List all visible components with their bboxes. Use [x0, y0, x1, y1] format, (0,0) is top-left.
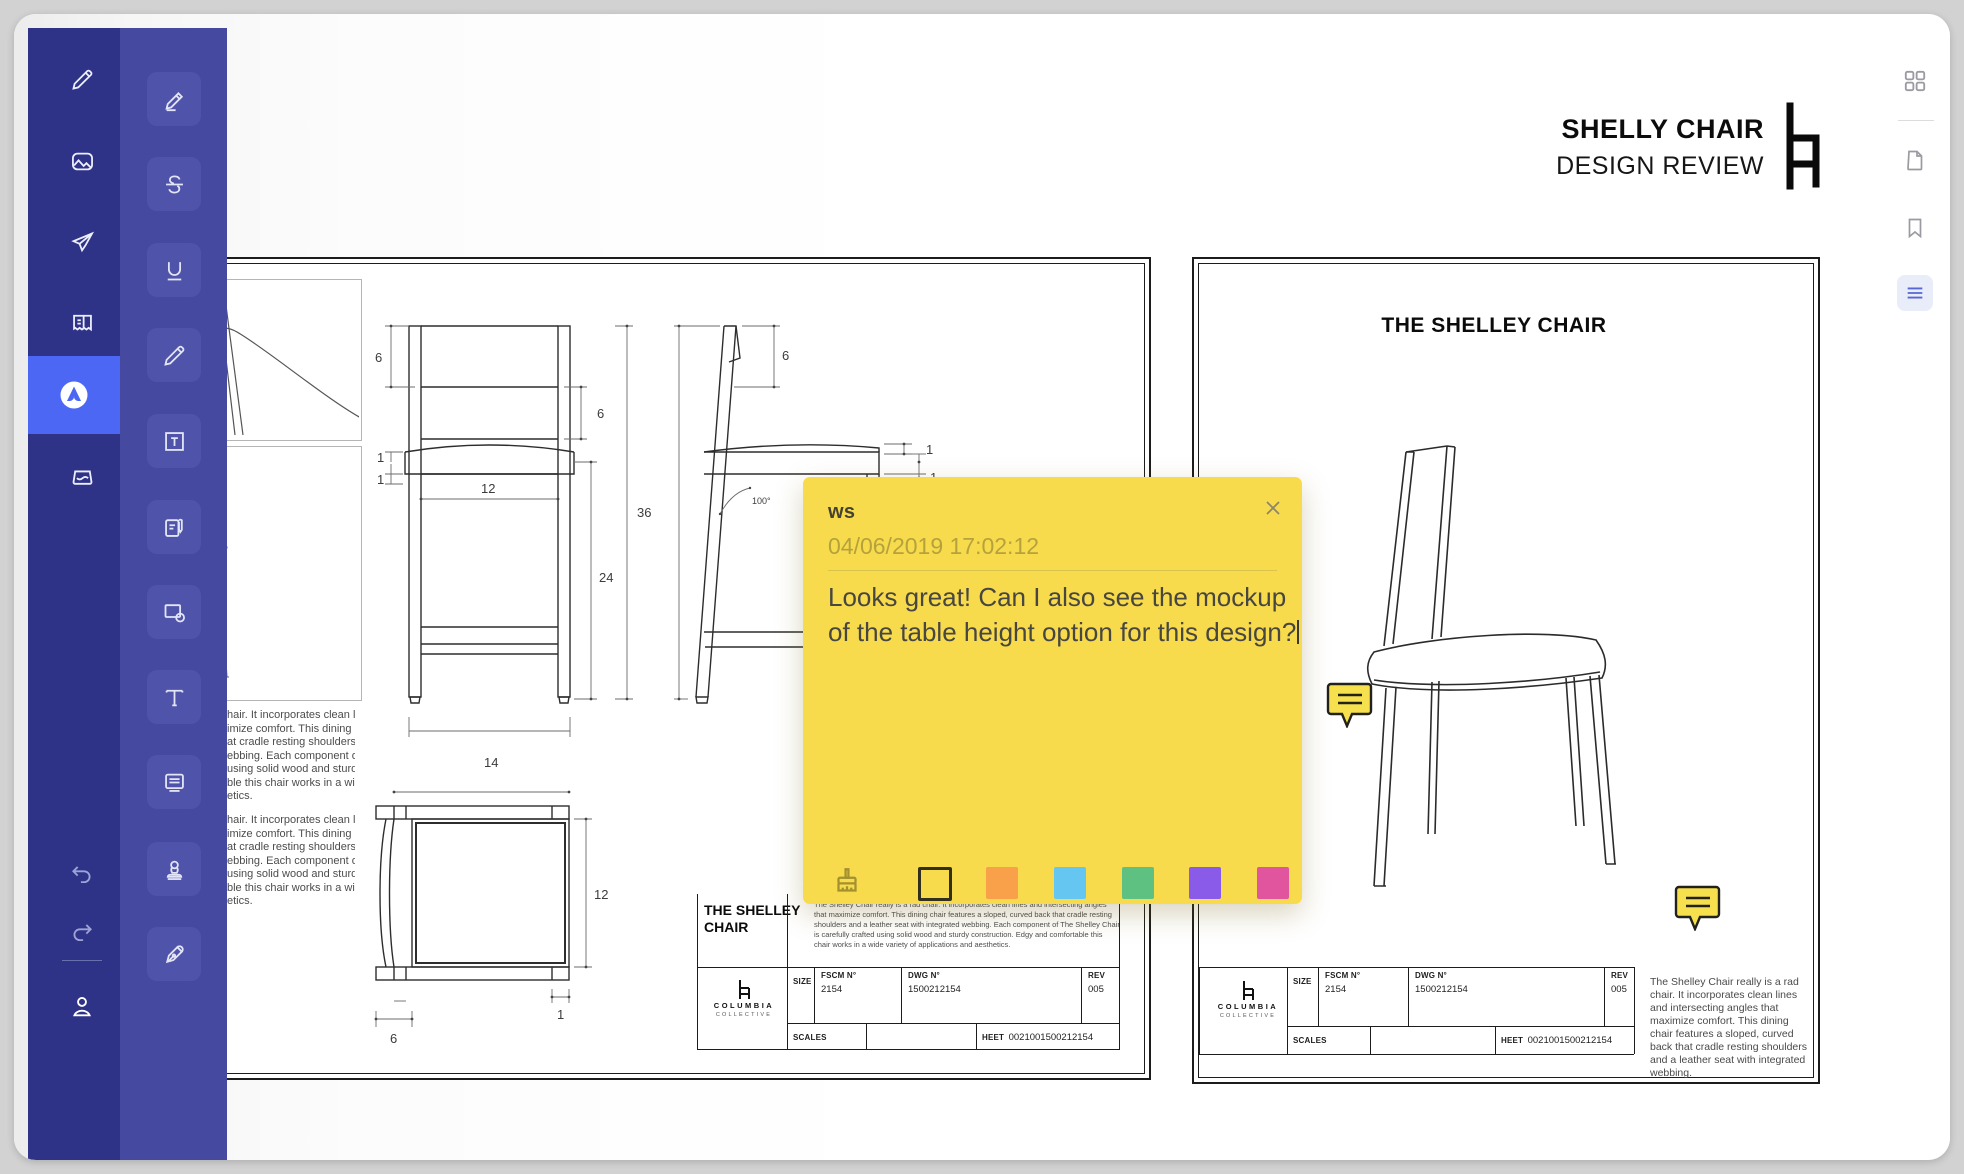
dim-side-top: 6	[782, 348, 789, 363]
annotation-tool-icon	[55, 376, 93, 414]
user-button[interactable]	[42, 978, 122, 1034]
send-icon	[69, 229, 96, 256]
dim-side-angle: 100°	[752, 496, 771, 506]
document-subtitle: DESIGN REVIEW	[1464, 152, 1764, 181]
tool-strikethrough[interactable]	[147, 157, 201, 211]
comment-pin-2[interactable]	[1674, 885, 1722, 931]
left-block-title: THE SHELLEY CHAIR	[704, 902, 804, 936]
note-divider	[828, 570, 1277, 571]
tool-underline[interactable]	[147, 243, 201, 297]
left-paragraph-1: hair. It incorporates clean lines imize …	[227, 709, 355, 804]
right-fscm-cell: FSCM N°2154	[1318, 967, 1408, 1026]
dim-front-leg: 24	[599, 570, 613, 585]
page-icon	[1903, 148, 1927, 172]
text-frame-icon	[161, 428, 188, 455]
color-swatch-pink[interactable]	[1257, 867, 1289, 899]
right-rev-cell: REV005	[1604, 967, 1634, 1026]
dim-front-top: 6	[375, 350, 382, 365]
tool-sign-pen[interactable]	[147, 927, 201, 981]
redo-icon	[69, 919, 95, 945]
color-swatch-blue[interactable]	[1054, 867, 1086, 899]
tool-paragraph[interactable]	[147, 755, 201, 809]
close-icon	[1261, 496, 1285, 520]
tool-ticket[interactable]	[42, 294, 122, 350]
chair-logo-icon	[1240, 980, 1256, 1002]
chair-logo-icon	[736, 979, 752, 1001]
text-cursor	[1297, 620, 1299, 644]
app-window: 6 6 1 1 12 24 36 14	[14, 14, 1950, 1160]
right-sheet-title: THE SHELLEY CHAIR	[1264, 314, 1724, 338]
tool-image[interactable]	[42, 133, 122, 189]
note-close-button[interactable]	[1258, 493, 1288, 523]
toolbar-divider	[62, 960, 102, 961]
bookmarks-button[interactable]	[1897, 210, 1933, 246]
rail-divider	[1898, 120, 1934, 121]
pages-button[interactable]	[1897, 142, 1933, 178]
right-description: The Shelley Chair really is a rad chair.…	[1650, 976, 1814, 1080]
menu-icon	[1904, 282, 1926, 304]
color-swatch-orange[interactable]	[986, 867, 1018, 899]
dim-top-back: 6	[390, 1031, 397, 1046]
dim-top-depth: 12	[594, 887, 608, 902]
left-sheetno-cell: HEET 0021001500212154	[976, 1023, 1119, 1049]
grid-icon	[1902, 68, 1928, 94]
right-brand: COLUMBIA COLLECTIVE	[1209, 980, 1287, 1019]
tool-shape-image[interactable]	[147, 585, 201, 639]
chair-logo-icon	[1778, 102, 1824, 192]
tool-stamp[interactable]	[147, 842, 201, 896]
sign-pen-icon	[161, 941, 188, 968]
note-author: ws	[828, 501, 855, 524]
shape-image-icon	[161, 599, 188, 626]
left-paragraph-2: hair. It incorporates clean lines imize …	[227, 814, 355, 909]
right-dwg-cell: DWG N°1500212154	[1408, 967, 1604, 1026]
left-dwg-cell: DWG N°1500212154	[901, 967, 1081, 1023]
document-title: SHELLY CHAIR	[1464, 114, 1764, 145]
left-size-cell: SIZE	[787, 967, 814, 1023]
top-view-drawing: 12 1 6	[364, 779, 674, 1069]
tool-note-edit[interactable]	[147, 500, 201, 554]
note-brush-button[interactable]	[830, 865, 864, 899]
user-icon	[68, 992, 96, 1020]
tool-highlighter[interactable]	[147, 72, 201, 126]
bookmark-icon	[1903, 216, 1927, 240]
inbox-icon	[69, 463, 96, 490]
right-size-cell: SIZE	[1287, 967, 1318, 1026]
right-sheetno-cell: HEET 0021001500212154	[1495, 1026, 1634, 1054]
dim-front-back: 6	[597, 406, 604, 421]
highlighter-icon	[161, 86, 188, 113]
image-icon	[69, 148, 96, 175]
ticket-icon	[69, 309, 96, 336]
stamp-icon	[161, 856, 188, 883]
tool-inbox[interactable]	[42, 448, 122, 504]
left-scales-cell: SCALES	[787, 1023, 866, 1049]
tool-text[interactable]	[147, 670, 201, 724]
tool-text-frame[interactable]	[147, 414, 201, 468]
brush-icon	[830, 865, 864, 899]
left-brand: COLUMBIA COLLECTIVE	[704, 979, 784, 1018]
left-rev-cell: REV005	[1081, 967, 1119, 1023]
tool-annotation-active[interactable]	[28, 356, 120, 434]
note-timestamp: 04/06/2019 17:02:12	[828, 533, 1039, 560]
left-block-description: The Shelley Chair really is a rad chair.…	[814, 900, 1120, 950]
note-body-text[interactable]: Looks great! Can I also see the mockup o…	[828, 580, 1288, 650]
tool-pen[interactable]	[147, 328, 201, 382]
pen-icon	[161, 342, 188, 369]
perspective-chair-drawing	[1344, 434, 1684, 924]
tool-send[interactable]	[42, 214, 122, 270]
color-swatch-current[interactable]	[918, 867, 952, 901]
dim-top-edge: 1	[557, 1007, 564, 1022]
outline-menu-button[interactable]	[1897, 275, 1933, 311]
tool-pencil[interactable]	[42, 51, 122, 107]
color-swatch-purple[interactable]	[1189, 867, 1221, 899]
dim-front-width: 12	[481, 481, 495, 496]
left-fscm-cell: FSCM N°2154	[814, 967, 901, 1023]
pencil-icon	[69, 66, 96, 93]
dim-front-seat2: 1	[377, 472, 384, 487]
grid-view-button[interactable]	[1897, 63, 1933, 99]
dim-front-height: 36	[637, 505, 651, 520]
strikethrough-icon	[161, 171, 188, 198]
undo-icon	[69, 861, 95, 887]
redo-button[interactable]	[42, 904, 122, 960]
note-edit-icon	[161, 514, 188, 541]
front-view-drawing: 6 6 1 1 12 24 36 14	[369, 302, 679, 782]
text-icon	[161, 684, 188, 711]
undo-button[interactable]	[42, 846, 122, 902]
dim-side-one-a: 1	[926, 442, 933, 457]
underline-icon	[161, 257, 188, 284]
color-swatch-green[interactable]	[1122, 867, 1154, 899]
right-scales-cell: SCALES	[1287, 1026, 1370, 1054]
comment-pin-1[interactable]	[1326, 682, 1374, 728]
paragraph-icon	[161, 769, 188, 796]
dim-front-seat1: 1	[377, 450, 384, 465]
dim-front-base: 14	[484, 755, 498, 770]
